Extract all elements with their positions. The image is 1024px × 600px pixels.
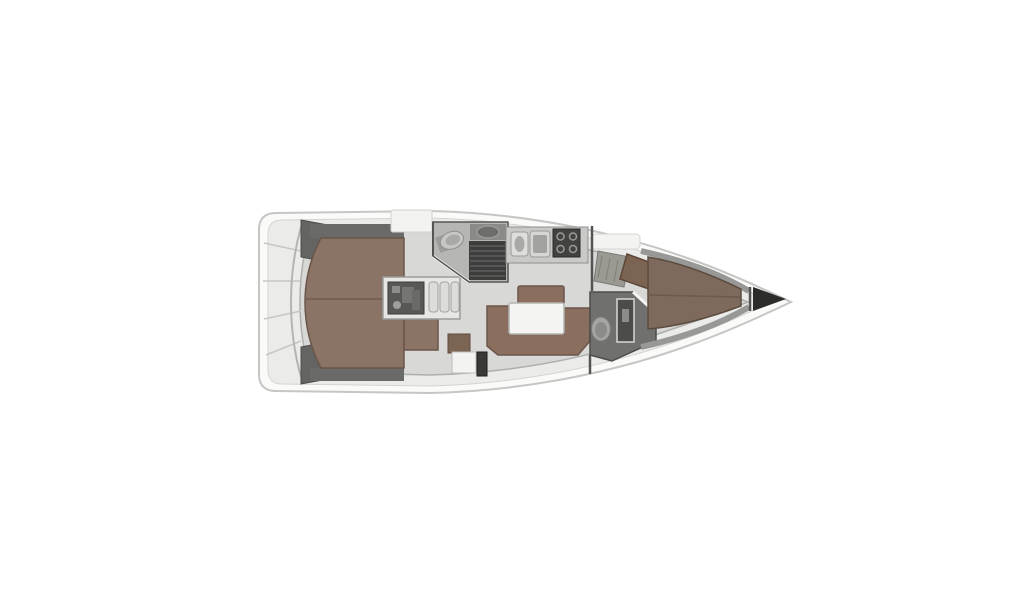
port-deck-hatch — [592, 234, 640, 249]
galley-sink-small-basin — [515, 236, 525, 252]
galley-sink-large-basin — [533, 235, 547, 253]
salon-locker — [452, 352, 476, 373]
engine-companionway-group — [383, 277, 460, 319]
aft-head-sink — [477, 226, 499, 238]
fwd-head-shower-handle — [622, 309, 629, 322]
salon-bench — [518, 286, 564, 304]
companionway-hatch — [391, 210, 432, 232]
aft-berth-extension — [404, 316, 438, 350]
galley-group — [506, 227, 588, 263]
salon-cabinet — [448, 334, 470, 353]
aft-cabin-locker-starboard — [310, 368, 404, 381]
salon-heater — [477, 352, 487, 376]
fwd-head-toilet-bowl — [595, 322, 607, 338]
aft-head-grate-lines — [470, 246, 505, 276]
yacht-floorplan-canvas — [0, 0, 1024, 600]
yacht-floorplan-diagram — [0, 0, 1024, 600]
companionway-steps — [429, 282, 459, 312]
galley-stove — [553, 229, 580, 257]
salon-table — [509, 303, 564, 334]
aft-cabin-locker-port — [310, 224, 404, 238]
